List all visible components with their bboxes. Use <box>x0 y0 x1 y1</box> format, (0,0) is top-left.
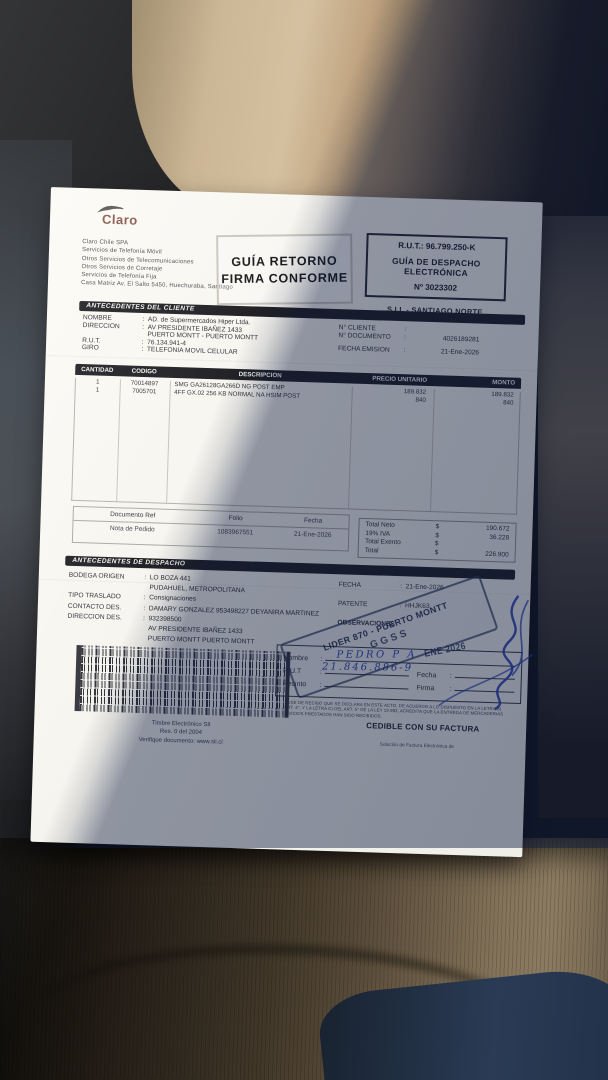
field-label: N° DOCUMENTO <box>338 332 400 342</box>
items-table: CANTIDAD CODIGO DESCRIPCION PRECIO UNITA… <box>71 364 521 515</box>
provider-note: Solución de Factura Electrónica de <box>380 743 455 750</box>
dispatch-details: BODEGA ORIGENLO BOZA 441 PUDAHUEL, METRO… <box>67 571 320 650</box>
document-paper: Claro Claro Chile SPA Servicios de Telef… <box>30 187 542 857</box>
guia-retorno-stamp: GUÍA RETORNO FIRMA CONFORME <box>216 234 353 306</box>
total-label: Total <box>365 547 435 558</box>
field-row: FECHA21-Ene-2026 <box>339 581 444 591</box>
stamp-line: FIRMA CONFORME <box>219 270 351 286</box>
doc-number: Nº 3023302 <box>367 281 504 294</box>
field-value: 21-Ene-2026 <box>409 347 479 357</box>
cell-monto: 840 <box>432 397 520 408</box>
column-divider <box>116 379 121 501</box>
cell-codigo: 7005701 <box>119 387 169 397</box>
timbre-caption: Timbre Electrónico SII Res. 0 del 2004 V… <box>74 717 289 749</box>
field-value: 4026189281 <box>409 334 479 344</box>
field-label <box>68 587 140 589</box>
field-value: TELEFONIA MOVIL CELULAR <box>147 346 238 356</box>
rut-box: R.U.T.: 96.799.250-K GUÍA DE DESPACHO EL… <box>365 233 508 301</box>
field-value: 932398500 <box>148 615 181 623</box>
column-header: Folio <box>191 511 279 527</box>
timbre-barcode <box>75 645 291 718</box>
column-divider <box>348 387 353 509</box>
cell-precio: 840 <box>350 395 432 406</box>
claro-logo: Claro <box>102 212 138 228</box>
field-label <box>67 638 139 640</box>
field-label <box>67 628 139 630</box>
car-seat-headrest <box>132 0 608 216</box>
column-divider <box>430 389 435 511</box>
column-header: Fecha <box>279 513 346 528</box>
items-table-body: 1 70014897 SMG GA26128GA266D NG POST EMP… <box>71 378 521 515</box>
section-title: ANTECEDENTES DEL CLIENTE <box>86 302 195 312</box>
cell-fecha: 21-Ene-2026 <box>279 527 346 543</box>
totals-box: Total Neto$190.672 19% IVA$36.228 Total … <box>358 518 517 563</box>
cell-folio: 1083967551 <box>191 525 279 542</box>
column-header: CANTIDAD <box>75 364 119 376</box>
field-label: FECHA <box>339 581 397 590</box>
field-label: FECHA EMISION <box>338 345 400 355</box>
section-title: ANTECEDENTES DE DESPACHO <box>72 557 185 568</box>
company-info: Claro Chile SPA Servicios de Telefonía M… <box>81 238 235 293</box>
field-value: AV PRESIDENTE IBAÑEZ 1433 <box>148 625 243 635</box>
field-value <box>410 331 480 333</box>
car-interior-photo: Claro Claro Chile SPA Servicios de Telef… <box>0 0 608 1080</box>
total-value: 226.900 <box>449 549 509 559</box>
currency-sign: $ <box>435 549 449 558</box>
field-value: Consignaciones <box>149 595 196 603</box>
field-value: PUERTO MONTT PUERTO MONTT <box>148 635 255 645</box>
reference-box: Documento Ref Folio Fecha Nota de Pedido… <box>72 506 350 552</box>
client-details: NOMBREAD. de Supermercados Hiper Ltda. D… <box>82 314 259 357</box>
column-header: CODIGO <box>119 365 169 378</box>
field-value: LO BOZA 441 <box>150 574 191 582</box>
field-label: GIRO <box>82 344 138 353</box>
issuer-rut: R.U.T.: 96.799.250-K <box>368 240 505 253</box>
field-label <box>82 334 138 336</box>
stamp-line: GUÍA RETORNO <box>218 253 350 269</box>
car-seat-side-right <box>538 118 608 818</box>
car-seat-cushion <box>0 838 608 1080</box>
column-header: MONTO <box>433 375 521 389</box>
column-divider <box>166 381 171 503</box>
cedible-note: CEDIBLE CON SU FACTURA <box>366 721 480 734</box>
field-row: FECHA EMISION21-Ene-2026 <box>338 345 479 357</box>
field-value: PUDAHUEL, METROPOLITANA <box>149 584 245 594</box>
column-header: PRECIO UNITARIO <box>351 373 433 387</box>
client-doc-info: N° CLIENTE N° DOCUMENTO4026189281 FECHA … <box>338 324 480 357</box>
signature-scribble <box>437 587 537 712</box>
cell-cantidad: 1 <box>76 386 120 395</box>
cell-doc-ref: Nota de Pedido <box>73 521 191 539</box>
